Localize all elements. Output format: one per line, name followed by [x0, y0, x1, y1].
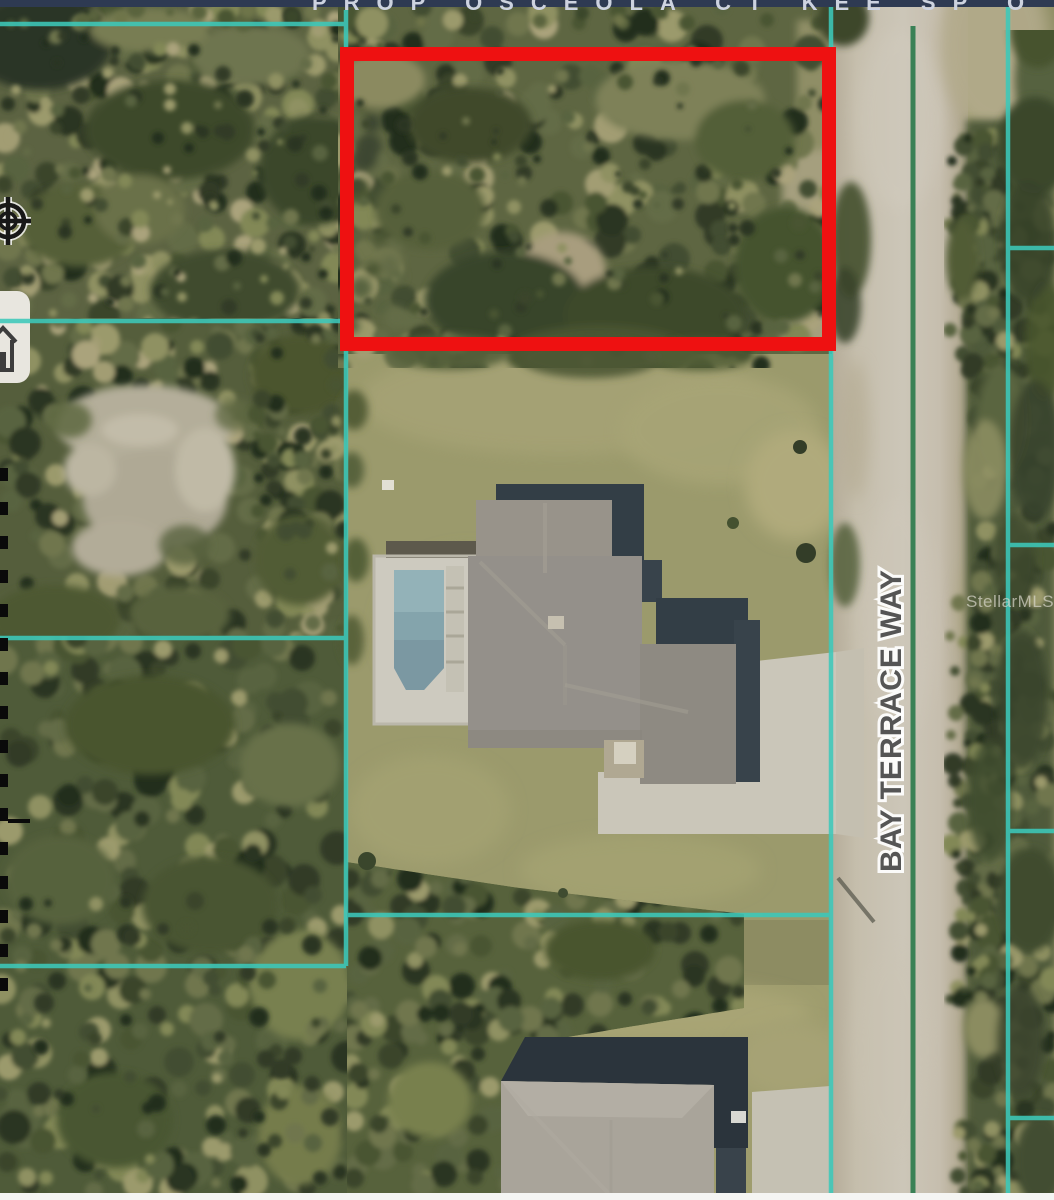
svg-text:BAY TERRACE WAY: BAY TERRACE WAY — [875, 569, 908, 872]
svg-text:StellarMLS: StellarMLS — [966, 592, 1054, 611]
